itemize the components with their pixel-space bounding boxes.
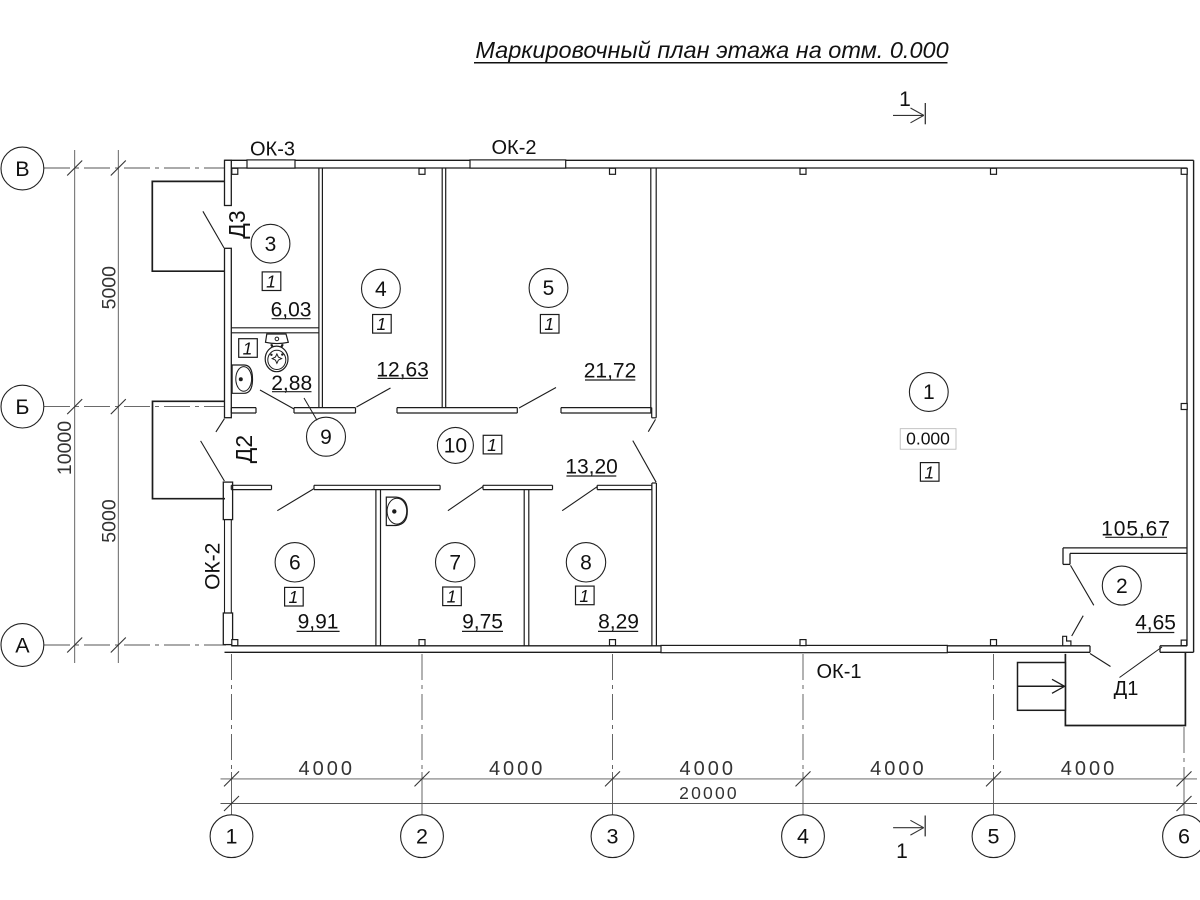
svg-text:10000: 10000 — [54, 421, 76, 475]
svg-text:5000: 5000 — [99, 266, 121, 310]
svg-text:4,65: 4,65 — [1135, 612, 1176, 635]
svg-text:1: 1 — [896, 840, 908, 863]
svg-text:1: 1 — [226, 825, 238, 849]
svg-text:1: 1 — [544, 314, 554, 334]
svg-text:3: 3 — [607, 825, 619, 849]
svg-text:4000: 4000 — [870, 758, 927, 780]
svg-text:5000: 5000 — [99, 499, 121, 543]
svg-text:4: 4 — [375, 278, 387, 301]
svg-text:Маркировочный план этажа на от: Маркировочный план этажа на отм. 0.000 — [475, 37, 948, 63]
svg-text:0.000: 0.000 — [906, 428, 950, 448]
svg-text:Б: Б — [15, 395, 29, 419]
svg-text:ОК-1: ОК-1 — [817, 661, 862, 683]
svg-text:6: 6 — [1178, 825, 1190, 849]
svg-text:9: 9 — [320, 426, 332, 449]
svg-text:8,29: 8,29 — [598, 610, 639, 633]
svg-text:9,75: 9,75 — [462, 610, 503, 633]
svg-text:4000: 4000 — [489, 758, 546, 780]
svg-text:Д2: Д2 — [231, 435, 257, 463]
svg-text:1: 1 — [487, 435, 497, 455]
svg-text:В: В — [15, 157, 29, 181]
svg-text:1: 1 — [924, 462, 934, 482]
svg-text:1: 1 — [289, 587, 299, 607]
svg-text:Д1: Д1 — [1114, 678, 1139, 700]
svg-text:9,91: 9,91 — [298, 610, 339, 633]
svg-text:ОК-2: ОК-2 — [202, 543, 225, 590]
svg-text:1: 1 — [377, 314, 387, 334]
svg-text:Д3: Д3 — [224, 210, 250, 238]
svg-text:1: 1 — [923, 381, 935, 404]
svg-text:5: 5 — [543, 277, 555, 300]
svg-text:20000: 20000 — [679, 783, 739, 803]
svg-text:7: 7 — [449, 552, 461, 575]
svg-text:4000: 4000 — [299, 758, 356, 780]
svg-text:1: 1 — [447, 587, 457, 607]
svg-text:8: 8 — [580, 552, 592, 575]
svg-text:1: 1 — [899, 88, 911, 111]
svg-text:4000: 4000 — [1061, 758, 1118, 780]
svg-text:2: 2 — [416, 825, 428, 849]
svg-text:10: 10 — [444, 435, 467, 458]
svg-text:13,20: 13,20 — [565, 455, 618, 478]
svg-text:1: 1 — [243, 338, 253, 358]
svg-text:А: А — [15, 633, 30, 657]
svg-text:6: 6 — [289, 552, 301, 575]
svg-text:4000: 4000 — [680, 758, 737, 780]
svg-text:ОК-2: ОК-2 — [492, 137, 537, 159]
svg-text:1: 1 — [579, 586, 589, 606]
svg-text:3: 3 — [265, 233, 277, 256]
svg-text:5: 5 — [988, 825, 1000, 849]
svg-text:21,72: 21,72 — [584, 360, 637, 383]
svg-text:ОК-3: ОК-3 — [250, 139, 295, 161]
svg-text:1: 1 — [266, 272, 276, 292]
svg-text:4: 4 — [797, 825, 809, 849]
svg-text:2: 2 — [1116, 575, 1128, 598]
